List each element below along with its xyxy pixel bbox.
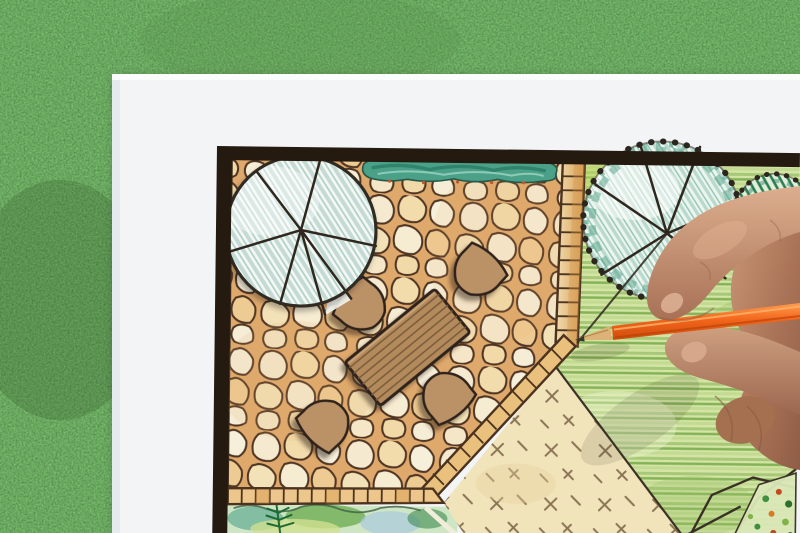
plant-bed-bottom — [227, 503, 457, 533]
tile-strip-bottom — [228, 486, 444, 507]
photo-stage — [0, 0, 800, 533]
garden-plan-photo — [0, 0, 800, 533]
